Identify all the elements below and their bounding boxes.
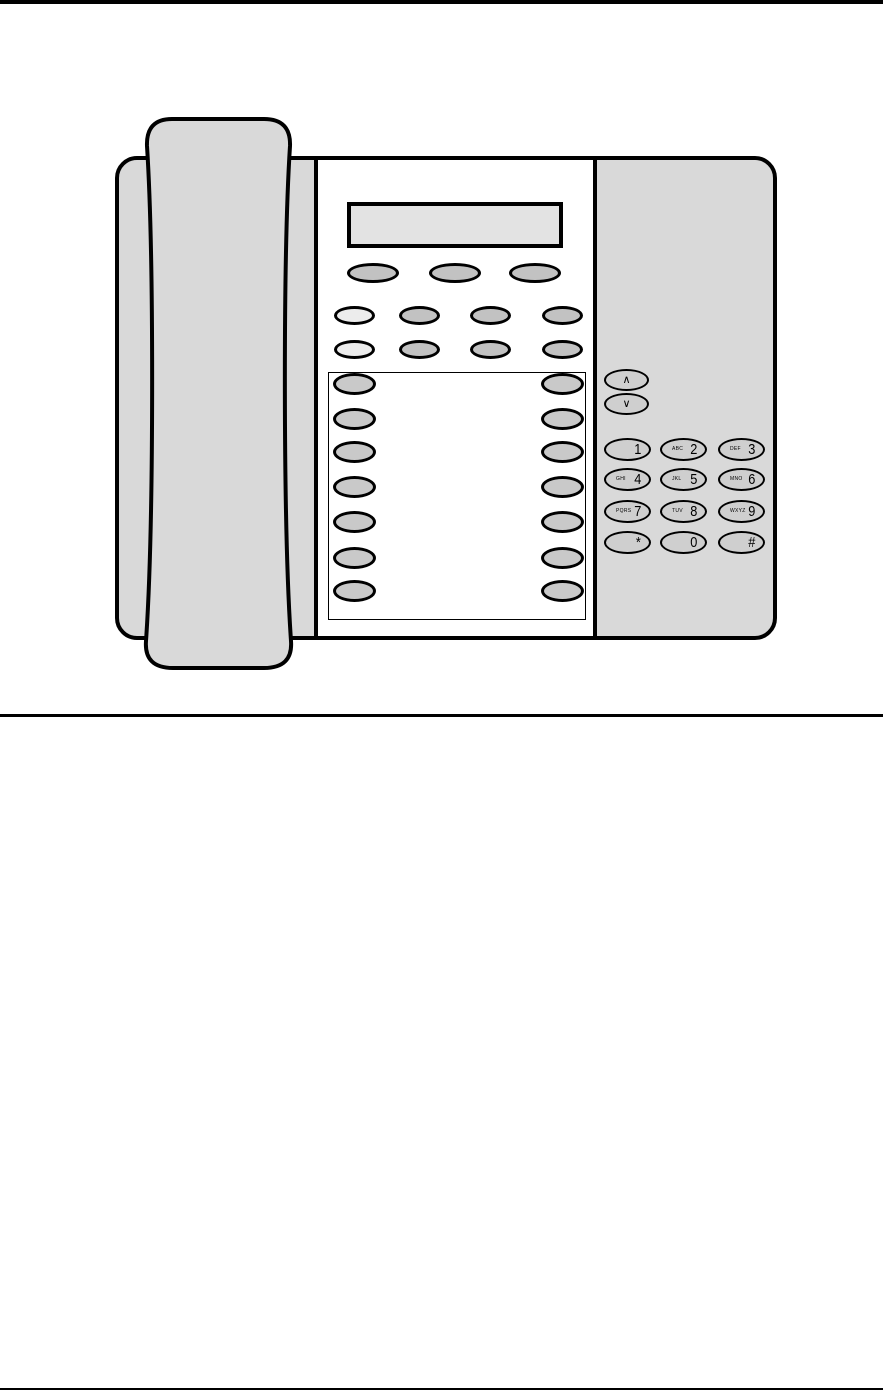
footer-rule <box>0 1388 883 1390</box>
separator-rule <box>0 714 883 717</box>
handset <box>0 0 883 700</box>
document-page: ∧ ∨ 1 ABC 2 DEF 3 GHI 4 JKL 5 MNO 6 <box>0 0 883 1396</box>
telephone-figure: ∧ ∨ 1 ABC 2 DEF 3 GHI 4 JKL 5 MNO 6 <box>0 0 883 700</box>
